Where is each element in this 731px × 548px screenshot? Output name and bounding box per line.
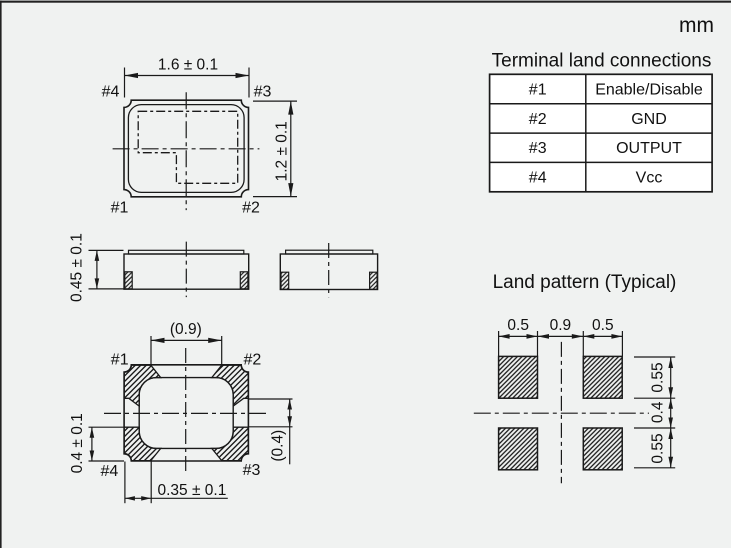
svg-text:Vcc: Vcc xyxy=(636,170,663,187)
svg-text:#4: #4 xyxy=(101,463,119,480)
svg-text:0.45 ± 0.1: 0.45 ± 0.1 xyxy=(69,233,86,302)
svg-text:0.4: 0.4 xyxy=(650,401,667,423)
svg-text:0.5: 0.5 xyxy=(507,317,529,334)
svg-text:1.6 ± 0.1: 1.6 ± 0.1 xyxy=(158,56,218,73)
svg-text:0.35 ± 0.1: 0.35 ± 0.1 xyxy=(158,482,227,499)
svg-text:#1: #1 xyxy=(111,200,129,217)
svg-text:0.55: 0.55 xyxy=(650,362,667,392)
svg-text:#1: #1 xyxy=(529,82,547,99)
svg-text:mm: mm xyxy=(679,14,714,37)
svg-text:0.4 ± 0.1: 0.4 ± 0.1 xyxy=(69,413,86,473)
svg-text:#1: #1 xyxy=(111,352,129,369)
svg-text:Terminal land connections: Terminal land connections xyxy=(492,51,712,72)
svg-text:#3: #3 xyxy=(243,462,261,479)
svg-text:Land pattern (Typical): Land pattern (Typical) xyxy=(493,272,677,293)
svg-text:#2: #2 xyxy=(529,111,547,128)
svg-text:(0.9): (0.9) xyxy=(170,321,202,338)
svg-text:#4: #4 xyxy=(529,170,547,187)
svg-text:#3: #3 xyxy=(254,84,272,101)
svg-text:1.2 ± 0.1: 1.2 ± 0.1 xyxy=(273,121,290,181)
svg-text:#4: #4 xyxy=(102,84,120,101)
svg-text:#3: #3 xyxy=(529,140,547,157)
svg-text:(0.4): (0.4) xyxy=(269,430,286,462)
svg-text:OUTPUT: OUTPUT xyxy=(616,140,682,157)
svg-text:GND: GND xyxy=(631,111,667,128)
svg-text:Enable/Disable: Enable/Disable xyxy=(595,82,703,99)
svg-text:0.9: 0.9 xyxy=(550,317,572,334)
svg-text:0.5: 0.5 xyxy=(592,317,614,334)
svg-text:0.55: 0.55 xyxy=(650,433,667,463)
svg-text:#2: #2 xyxy=(244,352,262,369)
svg-text:#2: #2 xyxy=(242,200,260,217)
